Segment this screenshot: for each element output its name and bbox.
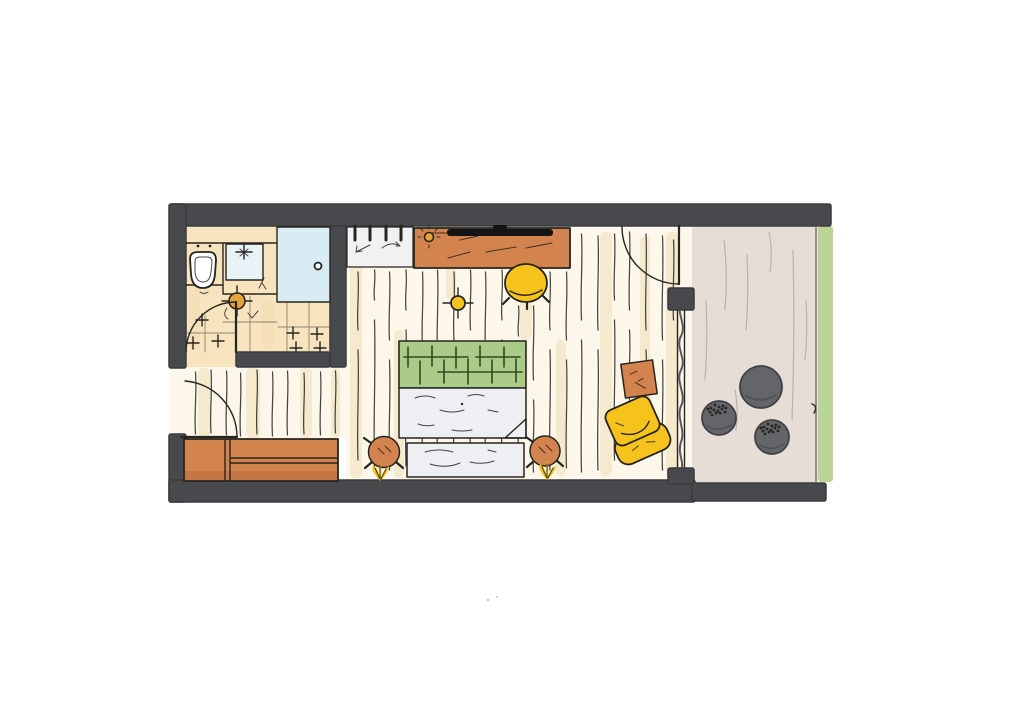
bench-top — [407, 443, 524, 477]
double-bed — [399, 341, 526, 438]
pouf-dot — [711, 414, 714, 417]
balcony-floor — [692, 226, 818, 483]
pouf-dot — [762, 430, 765, 433]
pouf-dot — [766, 428, 769, 431]
pouf-dot — [764, 433, 767, 436]
window-mullion-bottom — [668, 468, 694, 484]
green-headboard — [399, 341, 526, 388]
chair-seat — [505, 264, 547, 302]
wood-streak — [198, 368, 210, 438]
pouf-dot — [760, 427, 763, 430]
top-wall — [170, 204, 831, 226]
pouf-dot — [707, 408, 710, 411]
grass-edge — [818, 226, 833, 482]
pouf-dotted-near — [702, 401, 736, 435]
toilet-bolt — [197, 245, 200, 248]
pouf-dot — [722, 405, 725, 408]
pouf-dot — [771, 425, 774, 428]
shower — [277, 227, 330, 302]
pouf-dot — [777, 430, 780, 433]
pouf-dot — [717, 410, 720, 413]
pencil-specks — [487, 596, 498, 601]
page — [0, 0, 1024, 724]
pouf-dot — [714, 404, 717, 407]
lamp-bulb — [425, 233, 434, 242]
wardrobe-sideboard — [184, 439, 338, 481]
bathroom-door-threshold — [186, 352, 236, 367]
stool-top — [369, 437, 400, 468]
wood-streak — [300, 368, 312, 438]
wood-streak — [350, 232, 362, 478]
bottom-wall — [169, 480, 695, 502]
pouf-dot — [709, 411, 712, 414]
side-table — [621, 360, 657, 398]
pouf-dot — [772, 431, 775, 434]
pouf-large — [740, 366, 782, 408]
pouf-dot — [770, 429, 773, 432]
pouf-dotted-far — [755, 420, 789, 454]
balcony-bottom-wall — [692, 483, 826, 501]
wardrobe-shading — [185, 471, 337, 480]
pouf-dot — [710, 407, 713, 410]
pouf-dot — [725, 407, 728, 410]
wall-tv — [447, 229, 553, 236]
pouf-dot — [715, 412, 718, 415]
radiator — [347, 226, 413, 267]
pouf-dot — [767, 423, 770, 426]
speck — [496, 596, 498, 598]
speck — [487, 599, 489, 601]
foot-bench — [407, 443, 524, 477]
washbasin — [226, 244, 263, 280]
pouf-dot — [721, 408, 724, 411]
duvet-dot — [461, 403, 463, 405]
entry-opening-floor — [170, 368, 186, 434]
pouf-dot — [713, 409, 716, 412]
side-table-top — [621, 360, 657, 398]
bathroom-right-wall — [330, 226, 346, 367]
pouf-dot — [719, 412, 722, 415]
pouf-dot — [763, 426, 766, 429]
desk-sideboard — [414, 225, 570, 268]
light-bulb — [451, 296, 465, 310]
window-mullion-top — [668, 288, 694, 310]
toilet-bolt — [209, 245, 212, 248]
floor-plan-drawing — [0, 0, 1024, 724]
wood-streak — [600, 232, 612, 476]
left-wall-upper — [169, 204, 186, 368]
wood-streak — [262, 300, 274, 350]
bathroom-bottom-wall — [236, 352, 330, 367]
pouf-dot — [778, 426, 781, 429]
pouf-dot — [775, 424, 778, 427]
pouf-dot — [774, 427, 777, 430]
shower-drain — [315, 263, 322, 270]
pouf-dot — [718, 406, 721, 409]
pouf-dot — [724, 411, 727, 414]
pouf-top — [740, 366, 782, 408]
stool-top — [530, 436, 560, 466]
pouf-dot — [768, 431, 771, 434]
